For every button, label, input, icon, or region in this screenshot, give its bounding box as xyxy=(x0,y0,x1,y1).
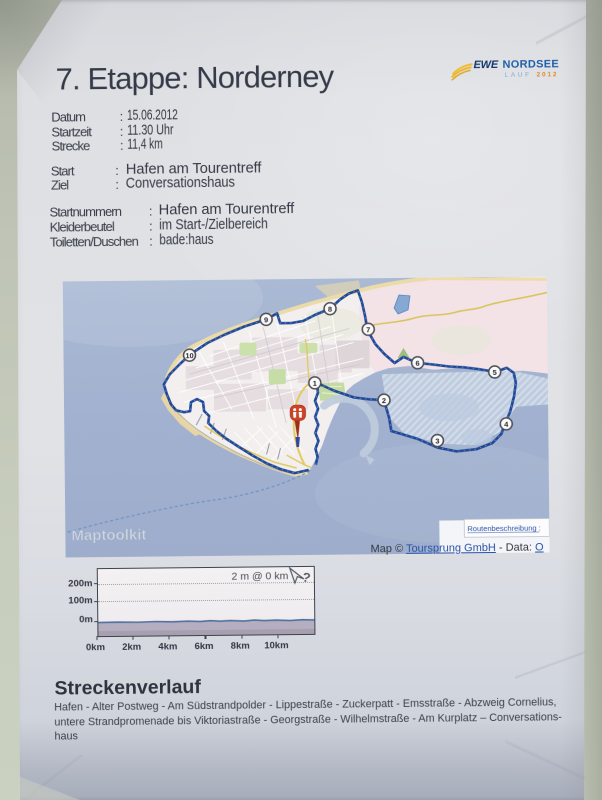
svg-text:7: 7 xyxy=(366,325,370,334)
svg-text:Routenbeschreibung :: Routenbeschreibung : xyxy=(467,523,540,533)
svg-text:6: 6 xyxy=(415,359,419,368)
svg-text:5: 5 xyxy=(493,368,497,377)
svg-text:10: 10 xyxy=(185,351,193,360)
svg-text:1: 1 xyxy=(313,379,317,388)
svg-text:?: ? xyxy=(301,569,312,585)
svg-text:2: 2 xyxy=(382,396,386,405)
svg-text:Maptoolkit: Maptoolkit xyxy=(71,527,146,545)
svg-text:9: 9 xyxy=(264,315,268,324)
svg-text:3: 3 xyxy=(435,436,439,445)
svg-text:8: 8 xyxy=(328,304,332,313)
